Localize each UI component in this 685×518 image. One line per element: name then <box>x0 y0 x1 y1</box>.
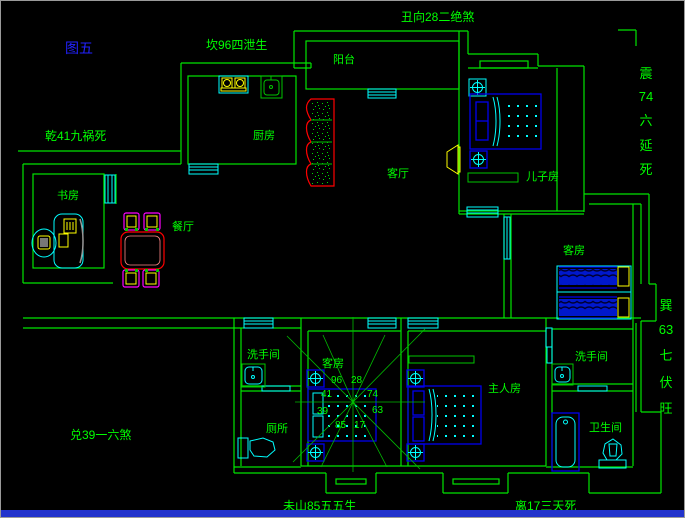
room-label-guest-right: 客房 <box>563 243 585 257</box>
svg-text:74: 74 <box>639 89 653 104</box>
sink <box>242 364 265 387</box>
room-label-guest-small: 客房 <box>322 356 344 370</box>
compass-number-w-upper: 41 <box>321 389 333 400</box>
room-label-balcony: 阳台 <box>333 52 355 66</box>
toilet <box>599 439 626 468</box>
window-son-room <box>467 207 498 217</box>
room-label-washroom-right: 洗手间 <box>575 349 608 363</box>
annotation-right-lower-vertical: 巽 63 七 伏 旺 <box>659 298 673 416</box>
desk-printer <box>59 234 68 247</box>
svg-text:震: 震 <box>639 66 652 81</box>
svg-text:旺: 旺 <box>659 401 672 416</box>
bottom-blue-bar <box>1 510 685 517</box>
annotation-right-upper-vertical: 震 74 六 延 死 <box>639 66 653 177</box>
compass-number-sw: 85 <box>335 420 347 431</box>
door-washroom-right <box>547 347 552 363</box>
study-furniture <box>32 214 83 268</box>
dining-set <box>121 213 164 287</box>
guest-beds <box>557 266 631 319</box>
son-room-furniture <box>469 79 541 168</box>
svg-text:巽: 巽 <box>659 298 672 313</box>
door-master <box>546 328 552 347</box>
right-bath-fixtures <box>552 364 626 471</box>
door-study <box>105 175 115 203</box>
compass-number-se: 17 <box>354 420 366 431</box>
svg-text:六: 六 <box>639 113 652 128</box>
door-guest-room <box>504 217 510 259</box>
window-balcony <box>368 89 396 98</box>
kitchen-fixtures <box>219 76 282 98</box>
window-kitchen <box>189 164 218 174</box>
sink <box>552 364 573 385</box>
kitchen-sink <box>261 76 282 98</box>
annotation-top-center: 丑向28二绝煞 <box>401 9 474 24</box>
window-guest-small <box>368 318 396 328</box>
compass-number-e-lower: 63 <box>372 405 384 416</box>
master-bed <box>408 386 481 444</box>
annotation-top-left: 坎96四泄生 <box>206 38 267 52</box>
compass-number-w-lower: 39 <box>317 406 329 417</box>
dining-chairs <box>123 213 160 287</box>
svg-text:延: 延 <box>639 138 652 153</box>
figure-label: 图五 <box>65 40 93 56</box>
svg-text:死: 死 <box>639 162 652 177</box>
room-label-study: 书房 <box>57 189 79 202</box>
window-washroom-left <box>244 318 273 328</box>
annotation-left-upper: 乾41九祸死 <box>45 128 106 143</box>
room-label-toilet: 厕所 <box>266 422 288 435</box>
room-label-dining: 餐厅 <box>172 219 194 233</box>
room-label-master: 主人房 <box>488 382 521 395</box>
door-toilet <box>262 386 290 391</box>
son-bed <box>470 94 541 149</box>
room-label-son: 儿子房 <box>526 170 559 183</box>
compass-number-e-upper: 74 <box>367 389 379 400</box>
svg-text:伏: 伏 <box>659 375 672 390</box>
window-master <box>408 318 438 328</box>
compass-number-nw: 96 <box>331 375 343 386</box>
svg-text:63: 63 <box>659 322 673 337</box>
dining-table <box>121 232 164 269</box>
room-label-bathroom: 卫生间 <box>589 420 622 434</box>
floorplan-drawing: 96 28 41 74 39 63 85 17 图五 坎96四泄生 丑向28二绝… <box>1 1 685 512</box>
bathtub <box>552 413 579 471</box>
room-label-living: 客厅 <box>387 166 409 180</box>
tv-speaker <box>447 145 460 174</box>
room-label-washroom-left: 洗手间 <box>247 347 280 361</box>
master-furniture <box>407 370 481 461</box>
room-label-kitchen: 厨房 <box>253 129 275 142</box>
svg-text:七: 七 <box>659 348 672 363</box>
left-bath-fixtures <box>238 364 275 458</box>
door-bathroom <box>578 386 607 391</box>
toilet <box>238 438 275 458</box>
planter <box>307 99 335 186</box>
cad-floorplan-canvas: 96 28 41 74 39 63 85 17 图五 坎96四泄生 丑向28二绝… <box>0 0 685 518</box>
annotation-left-lower: 兑39一六煞 <box>70 428 131 442</box>
compass-number-ne: 28 <box>351 375 363 386</box>
